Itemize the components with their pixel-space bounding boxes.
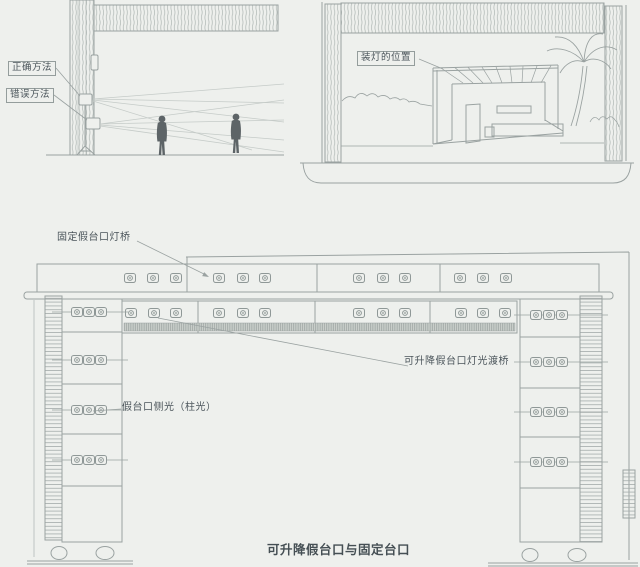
light-beams — [93, 84, 284, 152]
wrong-lamp — [86, 118, 100, 129]
left-ground-line — [27, 561, 133, 564]
left-tower-box — [62, 299, 122, 542]
leader-arrowhead — [202, 272, 209, 277]
window — [497, 106, 531, 113]
curtain-left — [325, 4, 341, 162]
left-tower-ladder — [45, 296, 62, 540]
curtain-top — [341, 3, 604, 33]
right-tower-wheel — [568, 549, 586, 562]
left-tower-wheel — [96, 547, 114, 560]
lower-bridge-strip-hatch — [124, 323, 515, 331]
proscenium-front-diagram — [24, 241, 638, 566]
label-side-light: 假台口侧光（柱光） — [122, 402, 217, 414]
left-post — [433, 68, 437, 144]
lower-bridge-lights — [126, 309, 511, 318]
right-tower-box — [520, 299, 580, 542]
apron-curve — [303, 163, 631, 183]
leader-fixed-bridge — [137, 241, 206, 275]
screenshot-root: 正确方法 错误方法 装灯的位置 固定假台口灯桥 可升降假台口灯光渡桥 假台口侧光… — [0, 0, 640, 567]
label-fixed-bridge: 固定假台口灯桥 — [57, 232, 131, 244]
ceiling-front-edge — [433, 65, 558, 71]
left-tower-row-lines — [52, 312, 128, 460]
edge-hatch-block — [623, 470, 635, 518]
right-tower-ladder — [580, 296, 602, 542]
left-wall — [433, 84, 563, 144]
label-mount-position: 装灯的位置 — [357, 51, 415, 66]
overhead-border-hatch — [94, 5, 278, 31]
right-ground-line — [488, 563, 638, 566]
label-correct-method: 正确方法 — [8, 61, 56, 76]
upper-bridge-box — [37, 264, 599, 292]
door — [466, 104, 480, 143]
curtain-right — [605, 6, 622, 161]
sectional-view-diagram — [46, 0, 284, 155]
wall-lamp — [91, 55, 98, 70]
leader-mount-position — [419, 59, 443, 69]
stage-set-diagram — [300, 2, 634, 183]
actor-far — [231, 114, 241, 153]
upper-bridge-lights — [125, 274, 512, 283]
proscenium-wall-hatch — [70, 0, 94, 155]
figure-caption: 可升降假台口与固定台口 — [267, 539, 410, 558]
label-wrong-method: 错误方法 — [6, 88, 54, 103]
room-set — [433, 65, 563, 144]
diagram-linework — [0, 0, 640, 567]
bridge-rail — [24, 292, 613, 299]
palm-trunk — [571, 66, 587, 126]
correct-lamp — [79, 94, 92, 105]
right-wall — [545, 65, 563, 131]
label-lift-bridge: 可升降假台口灯光渡桥 — [404, 356, 509, 368]
upper-bridge-overline — [186, 252, 629, 560]
left-tower-wheel — [51, 547, 67, 560]
right-side-light-tower — [488, 296, 638, 566]
backdrop-hills — [342, 93, 432, 106]
right-tower-wheel — [522, 549, 538, 562]
left-side-light-tower — [27, 296, 133, 564]
stage-floor — [341, 143, 604, 146]
